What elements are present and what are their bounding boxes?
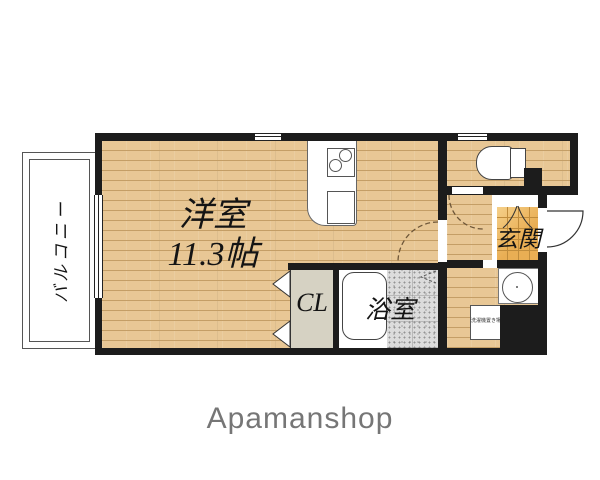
- bathroom-label: 浴室: [350, 290, 430, 326]
- sink-drain-dot: [516, 286, 518, 288]
- brand-logo: Apamanshop: [0, 402, 600, 436]
- window-top-right: [458, 133, 487, 141]
- washing-machine-label: 洗濯機置き場: [471, 317, 501, 324]
- hallway-floor: [447, 195, 492, 260]
- floorplan: バルコニー 洗濯機置き場: [0, 0, 600, 480]
- wall-column-notch: [524, 168, 542, 186]
- doorway-washroom: [483, 260, 497, 268]
- kitchen-sink-icon: [327, 191, 355, 224]
- closet-label: CL: [290, 288, 334, 318]
- balcony-window: [94, 195, 103, 298]
- balcony-label: バルコニー: [47, 198, 72, 303]
- main-room-label: 洋室 11.3帖: [113, 196, 313, 274]
- wall-right-entry-lower: [538, 252, 547, 355]
- balcony-room: バルコニー: [22, 152, 97, 349]
- wall-right-upper: [570, 133, 578, 188]
- entrance-label: 玄関: [490, 220, 546, 254]
- wall-left-upper: [95, 141, 102, 195]
- wall-left-lower: [95, 298, 102, 348]
- wall-right-entry-upper: [538, 195, 547, 208]
- wall-top: [95, 133, 578, 141]
- main-room-size: 11.3帖: [113, 235, 313, 274]
- stove-burner-icon: [329, 159, 342, 172]
- doorway-main-room: [438, 220, 447, 262]
- wall-main-right-lower: [438, 262, 447, 348]
- window-top-left: [255, 133, 281, 141]
- main-room-name: 洋室: [113, 196, 313, 235]
- entry-door-arc: [547, 211, 583, 247]
- toilet-icon: [476, 146, 513, 180]
- wall-bottom: [95, 348, 547, 355]
- washing-machine-space: 洗濯機置き場: [470, 305, 502, 340]
- stove-burner-icon: [339, 149, 352, 162]
- doorway-toilet: [452, 187, 483, 194]
- wall-main-right-upper: [438, 141, 447, 220]
